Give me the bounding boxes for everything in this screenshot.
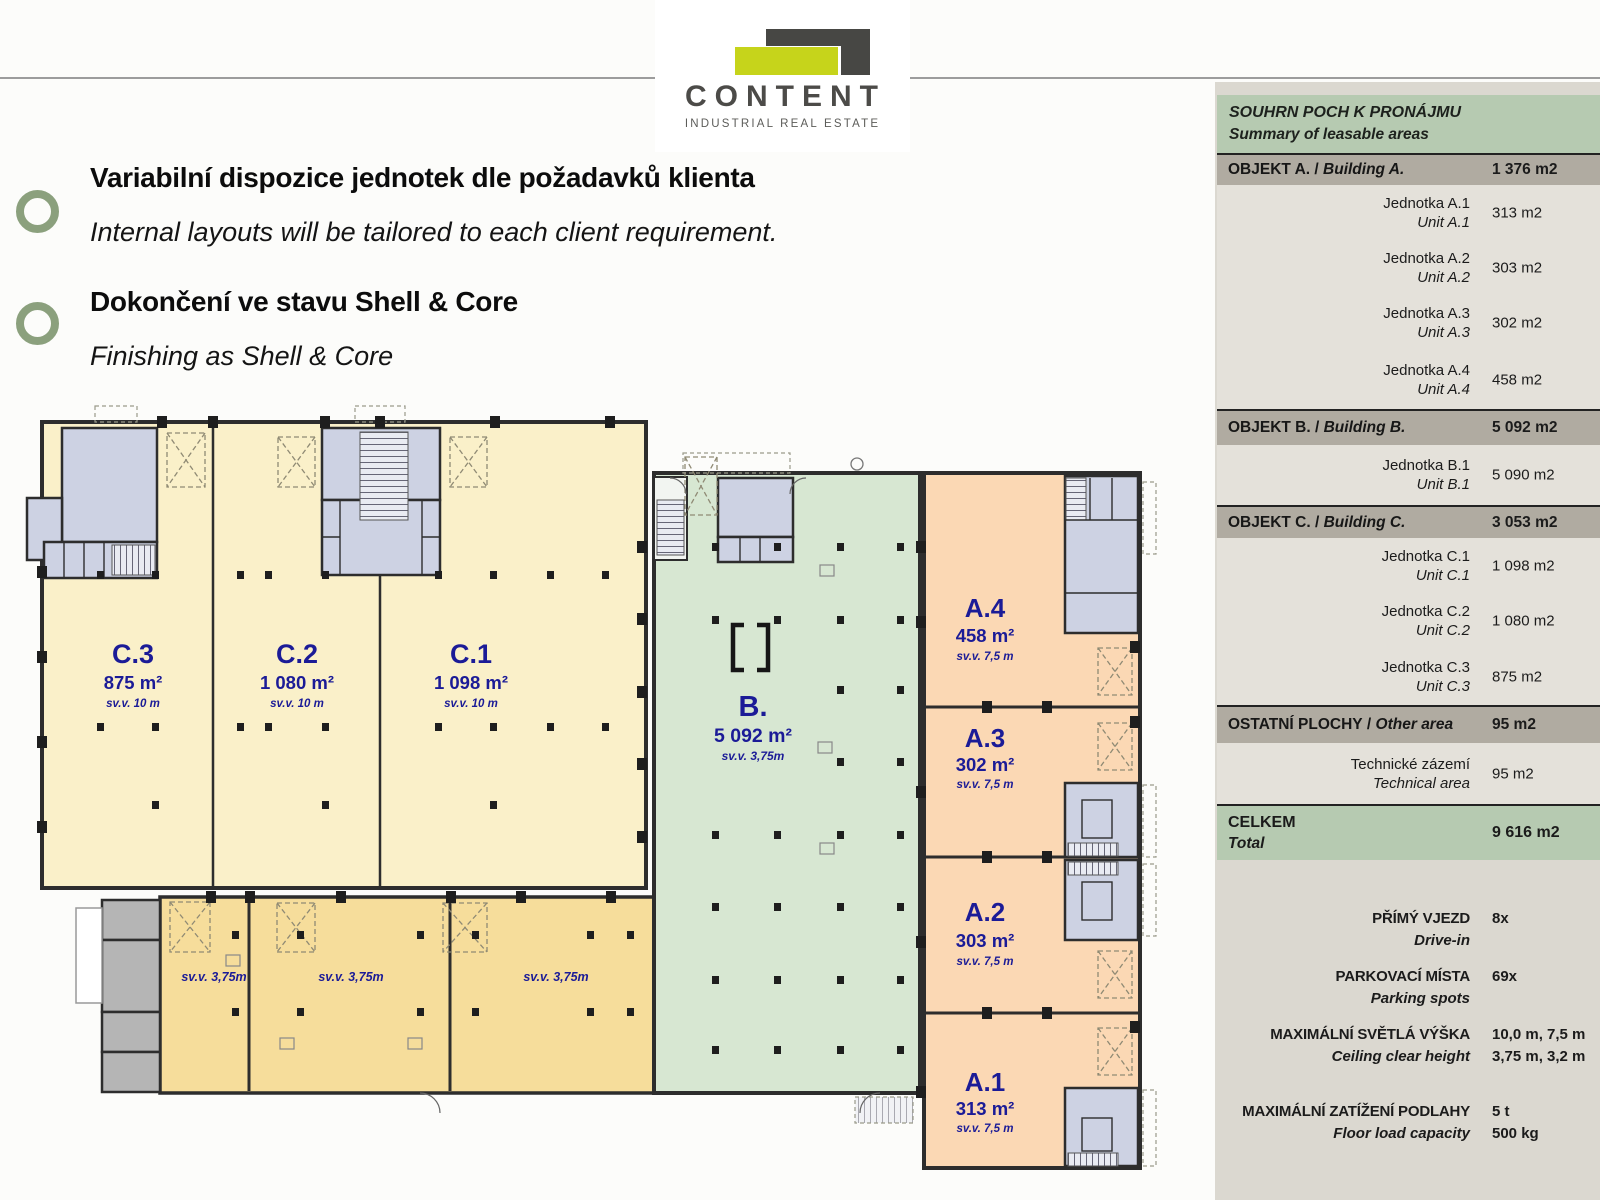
row-value: 5 090 m2 [1492, 467, 1555, 484]
fact-label-en: Ceiling clear height [1270, 1046, 1470, 1068]
summary-row-unit-a3: Jednotka A.3Unit A.3 302 m2 [1217, 295, 1600, 350]
section-value: 3 053 m2 [1492, 514, 1558, 532]
summary-row-unit-a1: Jednotka A.1Unit A.1 313 m2 [1217, 185, 1600, 240]
logo-wordmark: CONTENT [655, 80, 910, 114]
summary-row-unit-c1: Jednotka C.1Unit C.1 1 098 m2 [1217, 538, 1600, 593]
fact-label-en: Floor load capacity [1242, 1123, 1470, 1145]
fact-label-en: Parking spots [1336, 988, 1471, 1010]
row-label-cz: Jednotka C.3 [1382, 658, 1470, 677]
summary-section-objekt-b: OBJEKT B. / Building B. 5 092 m2 [1217, 411, 1600, 445]
summary-section-objekt-c: OBJEKT C. / Building C. 3 053 m2 [1217, 507, 1600, 538]
row-label-cz: Jednotka A.2 [1383, 249, 1470, 268]
fact-parking-spots: PARKOVACÍ MÍSTAParking spots 69x [1217, 966, 1600, 1012]
section-label: OBJEKT C. / Building C. [1217, 514, 1405, 532]
fact-label-cz: PŘÍMÝ VJEZD [1372, 908, 1470, 930]
summary-row-unit-a2: Jednotka A.2Unit A.2 303 m2 [1217, 240, 1600, 295]
total-label-cz: CELKEM [1228, 812, 1296, 833]
mezzanine-label-1: sv.v. 3,75m [181, 970, 246, 984]
row-value: 458 m2 [1492, 371, 1542, 388]
section-value: 95 m2 [1492, 716, 1536, 734]
row-label-cz: Jednotka C.2 [1382, 602, 1470, 621]
fact-label-cz: MAXIMÁLNÍ SVĚTLÁ VÝŠKA [1270, 1024, 1470, 1046]
unit-c3-clear-height: sv.v. 10 m [106, 698, 160, 710]
row-value: 1 080 m2 [1492, 612, 1555, 629]
row-label-en: Unit C.2 [1382, 621, 1470, 640]
row-label-en: Technical area [1351, 774, 1470, 793]
unit-c1-label: C.1 [450, 639, 492, 669]
row-label-cz: Jednotka C.1 [1382, 547, 1470, 566]
logo-dark-block [841, 29, 870, 75]
mezzanine-label-2: sv.v. 3,75m [318, 970, 383, 984]
row-label-cz: Jednotka A.3 [1383, 304, 1470, 323]
unit-a1-clear-height: sv.v. 7,5 m [957, 1123, 1014, 1135]
unit-a3-label: A.3 [965, 723, 1005, 753]
side-annex [76, 908, 102, 1003]
content-logo: CONTENT INDUSTRIAL REAL ESTATE [655, 0, 910, 152]
row-label-cz: Jednotka A.1 [1383, 194, 1470, 213]
fact-ceiling-height: MAXIMÁLNÍ SVĚTLÁ VÝŠKACeiling clear heig… [1217, 1024, 1600, 1070]
unit-c3-label: C.3 [112, 639, 154, 669]
row-label-en: Unit A.4 [1383, 380, 1470, 399]
row-value: 313 m2 [1492, 204, 1542, 221]
row-value: 875 m2 [1492, 668, 1542, 685]
summary-title: SOUHRN POCH K PRONÁJMU [1229, 102, 1600, 124]
row-label-en: Unit A.1 [1383, 213, 1470, 232]
bullet-2-title: Dokončení ve stavu Shell & Core [90, 284, 518, 320]
unit-a4-label: A.4 [965, 593, 1006, 623]
unit-a2-label: A.2 [965, 897, 1005, 927]
fact-value: 69x [1492, 966, 1517, 988]
mezzanine-strip [160, 897, 654, 1093]
row-label-cz: Technické zázemí [1351, 755, 1470, 774]
summary-section-objekt-a: OBJEKT A. / Building A. 1 376 m2 [1217, 155, 1600, 185]
section-value: 5 092 m2 [1492, 419, 1558, 437]
unit-c2-clear-height: sv.v. 10 m [270, 698, 324, 710]
unit-a2-clear-height: sv.v. 7,5 m [957, 956, 1014, 968]
unit-b-label: B. [739, 691, 768, 723]
mezzanine-label-3: sv.v. 3,75m [523, 970, 588, 984]
row-label-cz: Jednotka B.1 [1382, 456, 1470, 475]
row-value: 1 098 m2 [1492, 557, 1555, 574]
unit-c2-area: 1 080 m² [260, 672, 334, 693]
unit-a1-area: 313 m² [956, 1098, 1015, 1119]
unit-a4-clear-height: sv.v. 7,5 m [957, 651, 1014, 663]
unit-c3-area: 875 m² [104, 672, 163, 693]
summary-total-row: CELKEMTotal 9 616 m2 [1217, 806, 1600, 860]
unit-c1-area: 1 098 m² [434, 672, 508, 693]
fact-floor-load: MAXIMÁLNÍ ZATÍŽENÍ PODLAHYFloor load cap… [1217, 1101, 1600, 1147]
brochure-page: CONTENT INDUSTRIAL REAL ESTATE Variabiln… [0, 0, 1600, 1200]
unit-c1-clear-height: sv.v. 10 m [444, 698, 498, 710]
row-value: 303 m2 [1492, 259, 1542, 276]
summary-panel: SOUHRN POCH K PRONÁJMU Summary of leasab… [1215, 82, 1600, 1200]
total-label-en: Total [1228, 833, 1296, 854]
total-value: 9 616 m2 [1492, 824, 1560, 842]
section-value: 1 376 m2 [1492, 161, 1558, 179]
summary-row-technical-area: Technické zázemíTechnical area 95 m2 [1217, 743, 1600, 804]
logo-yellow-block [735, 47, 838, 75]
bullet-1-title: Variabilní dispozice jednotek dle požada… [90, 160, 755, 196]
unit-a2-area: 303 m² [956, 930, 1015, 951]
row-label-en: Unit C.3 [1382, 677, 1470, 696]
fact-value-2: 500 kg [1492, 1123, 1539, 1145]
unit-a3-clear-height: sv.v. 7,5 m [957, 779, 1014, 791]
fact-label-cz: MAXIMÁLNÍ ZATÍŽENÍ PODLAHY [1242, 1101, 1470, 1123]
summary-row-unit-b1: Jednotka B.1Unit B.1 5 090 m2 [1217, 445, 1600, 505]
column-circle [851, 458, 863, 470]
row-value: 95 m2 [1492, 765, 1534, 782]
summary-row-unit-c2: Jednotka C.2Unit C.2 1 080 m2 [1217, 593, 1600, 648]
fact-label-en: Drive-in [1372, 930, 1470, 952]
bullet-ring-icon [16, 302, 59, 345]
row-label-en: Unit A.2 [1383, 268, 1470, 287]
fact-value: 10,0 m, 7,5 m [1492, 1024, 1585, 1046]
fact-value: 8x [1492, 908, 1509, 930]
summary-header: SOUHRN POCH K PRONÁJMU Summary of leasab… [1217, 95, 1600, 153]
fact-drive-in: PŘÍMÝ VJEZDDrive-in 8x [1217, 908, 1600, 954]
section-label: OSTATNÍ PLOCHY / Other area [1217, 716, 1453, 734]
fact-label-cz: PARKOVACÍ MÍSTA [1336, 966, 1471, 988]
unit-a3-area: 302 m² [956, 754, 1015, 775]
unit-a4-area: 458 m² [956, 625, 1015, 646]
unit-b-area: 5 092 m² [714, 725, 793, 747]
summary-row-unit-a4: Jednotka A.4Unit A.4 458 m2 [1217, 350, 1600, 409]
unit-a1-label: A.1 [965, 1067, 1005, 1097]
row-label-cz: Jednotka A.4 [1383, 361, 1470, 380]
bullet-ring-icon [16, 190, 59, 233]
fact-value: 5 t [1492, 1101, 1539, 1123]
summary-row-unit-c3: Jednotka C.3Unit C.3 875 m2 [1217, 648, 1600, 705]
row-label-en: Unit B.1 [1382, 475, 1470, 494]
building-b-hall [654, 473, 920, 1093]
row-label-en: Unit A.3 [1383, 323, 1470, 342]
bullet-1-subtitle: Internal layouts will be tailored to eac… [90, 214, 777, 250]
summary-subtitle: Summary of leasable areas [1229, 124, 1600, 146]
service-rooms [102, 900, 160, 1092]
floor-plan: C.3 875 m² sv.v. 10 m C.2 1 080 m² sv.v.… [20, 390, 1190, 1190]
section-label: OBJEKT A. / Building A. [1217, 161, 1404, 179]
row-value: 302 m2 [1492, 314, 1542, 331]
unit-c2-label: C.2 [276, 639, 318, 669]
unit-b-clear-height: sv.v. 3,75m [722, 749, 785, 763]
fact-value-2: 3,75 m, 3,2 m [1492, 1046, 1585, 1068]
bullet-2-subtitle: Finishing as Shell & Core [90, 338, 393, 374]
section-label: OBJEKT B. / Building B. [1217, 419, 1405, 437]
logo-tagline: INDUSTRIAL REAL ESTATE [655, 118, 910, 130]
summary-section-other-area: OSTATNÍ PLOCHY / Other area 95 m2 [1217, 707, 1600, 743]
row-label-en: Unit C.1 [1382, 566, 1470, 585]
